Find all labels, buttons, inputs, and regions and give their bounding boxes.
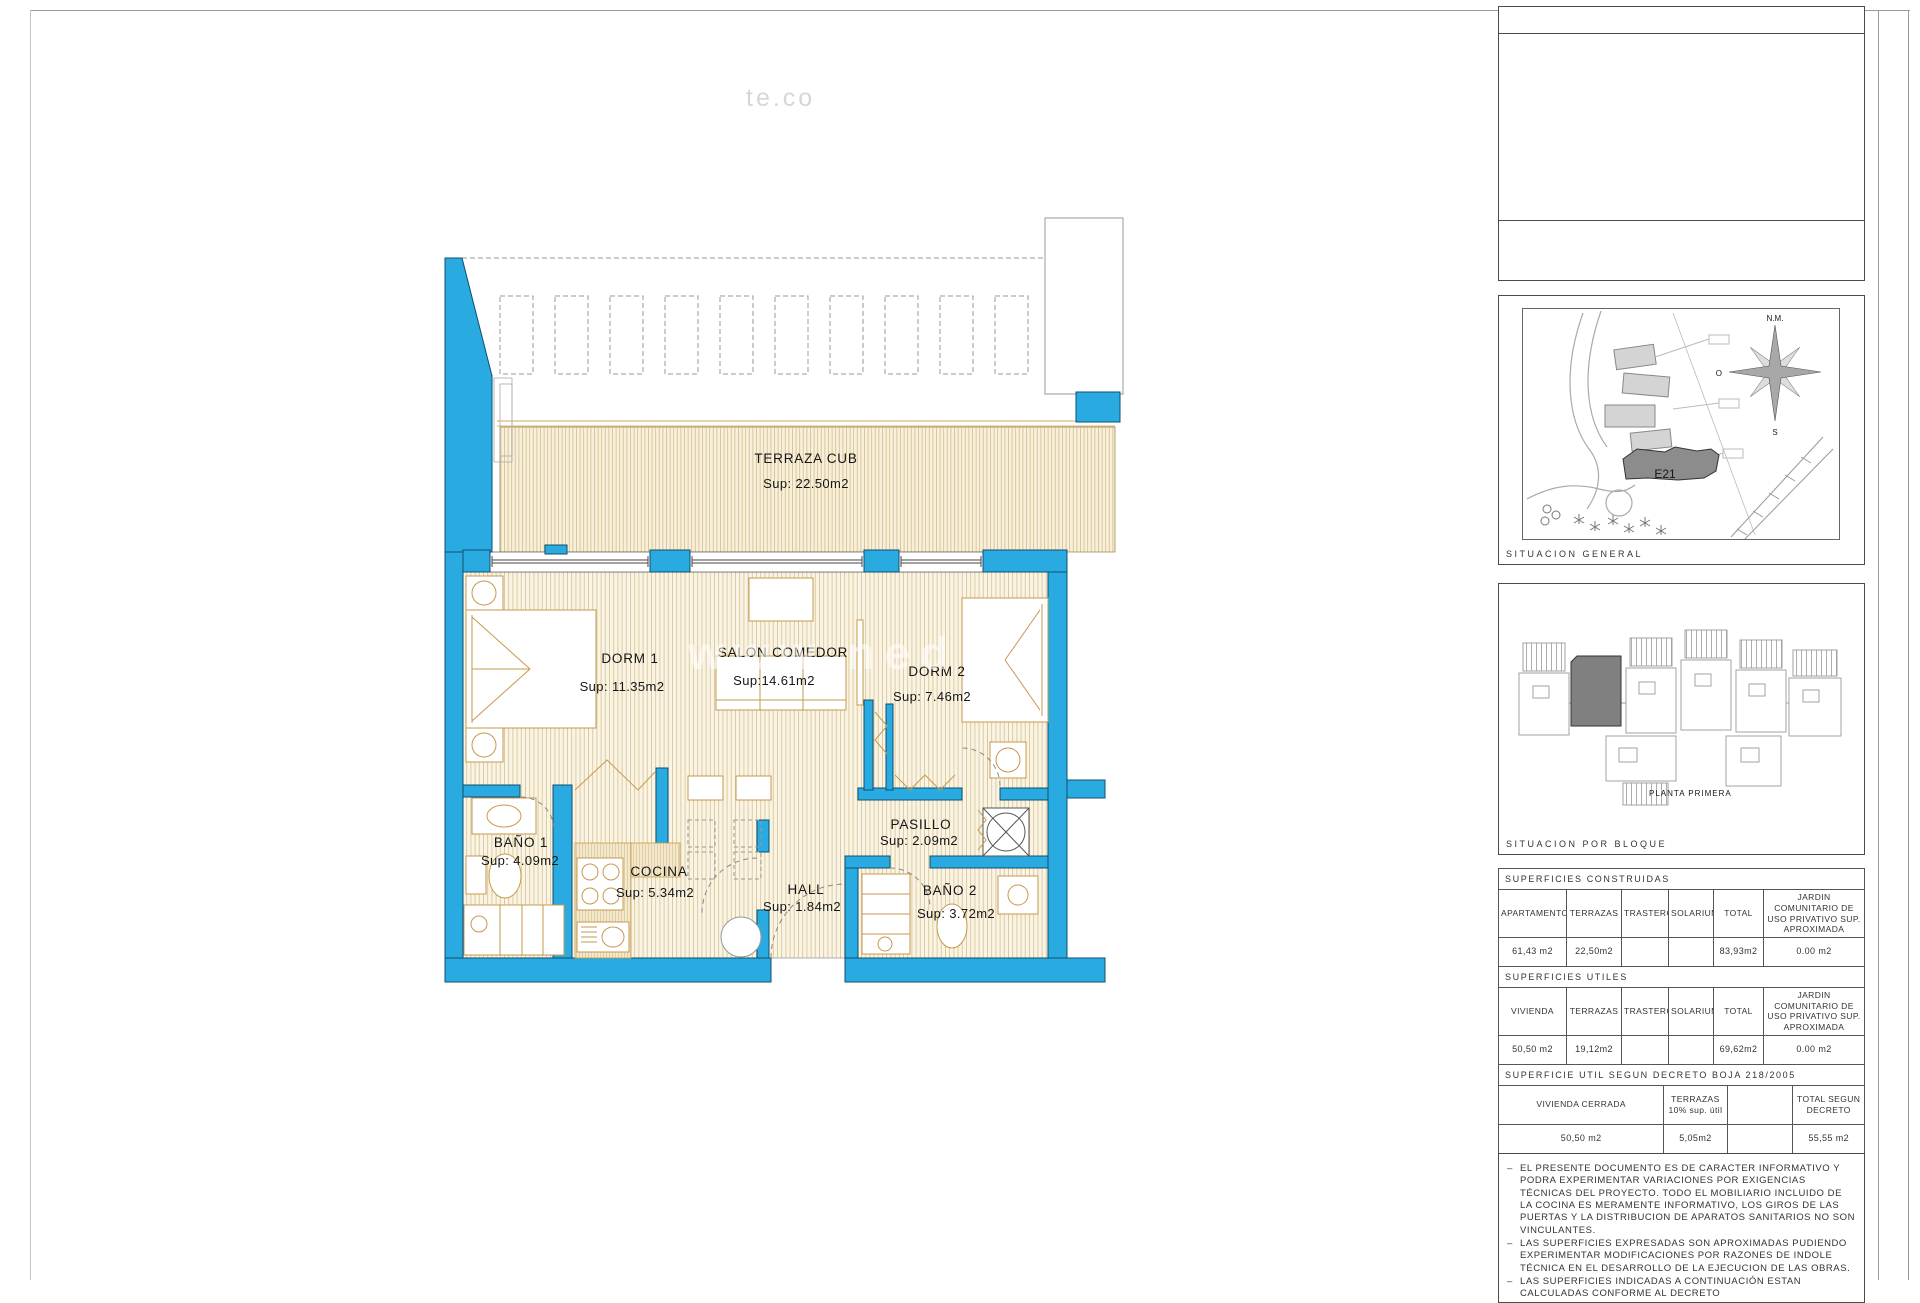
compass-south-label: S (1772, 428, 1777, 437)
col-header (1727, 1085, 1793, 1124)
bloque-plan-svg: PLANTA PRIMERA (1511, 598, 1851, 828)
situacion-general-panel: E21 N.M. O S SITUACION GENERAL (1498, 295, 1865, 565)
site-map-svg: E21 N.M. O S (1523, 309, 1839, 539)
title-block (1498, 6, 1865, 281)
room-area: Sup: 1.84m2 (763, 899, 841, 914)
notes-panel: – EL PRESENTE DOCUMENTO ES DE CARACTER I… (1498, 1153, 1865, 1303)
table-title: SUPERFICIE UTIL SEGUN DECRETO BOJA 218/2… (1499, 1064, 1865, 1085)
col-header: SOLARIUM (1669, 890, 1714, 938)
table-title: SUPERFICIES CONSTRUIDAS (1499, 869, 1865, 890)
window-band (463, 552, 1048, 572)
surface-tables: SUPERFICIES CONSTRUIDAS APARTAMENTO TERR… (1498, 868, 1865, 1179)
drawing-sheet: { "plan": { "rooms": [ {"name": "TERRAZA… (0, 0, 1920, 1280)
watermark-middle: www.ned (688, 626, 958, 680)
situacion-bloque-label: SITUACION POR BLOQUE (1506, 839, 1667, 849)
note-bullet: – (1507, 1163, 1520, 1237)
col-header: SOLARIUM (1669, 988, 1714, 1036)
room-label: DORM 1 (601, 651, 658, 666)
room-area: Sup: 4.09m2 (481, 853, 559, 868)
room-area: Sup: 2.09m2 (880, 833, 958, 848)
room-label: BAÑO 1 (494, 835, 548, 850)
roof-notch (1045, 218, 1123, 394)
col-header: TERRAZAS (1567, 988, 1622, 1036)
note-text: EL PRESENTE DOCUMENTO ES DE CARACTER INF… (1520, 1163, 1856, 1237)
compass-west-label: O (1716, 369, 1722, 378)
col-header: JARDIN COMUNITARIO DE USO PRIVATIVO SUP.… (1764, 988, 1865, 1036)
col-header: VIVIENDA (1499, 988, 1567, 1036)
room-area: Sup: 22.50m2 (763, 476, 849, 491)
room-area: Sup: 7.46m2 (893, 689, 971, 704)
cell-value: 55,55 m2 (1793, 1124, 1865, 1153)
watermark-top: te.co (746, 84, 815, 113)
cell-value: 5,05m2 (1664, 1124, 1727, 1153)
room-area: Sup: 11.35m2 (580, 679, 665, 694)
cell-value: 0.00 m2 (1764, 937, 1865, 966)
col-header: TRASTERO (1622, 988, 1669, 1036)
coffee-table (749, 578, 813, 621)
col-header: TERRAZAS (1567, 890, 1622, 938)
col-header: JARDIN COMUNITARIO DE USO PRIVATIVO SUP.… (1764, 890, 1865, 938)
frame-left (30, 10, 31, 1280)
site-trees (1541, 505, 1666, 535)
cell-value: 50,50 m2 (1499, 1124, 1664, 1153)
note-item: – LAS SUPERFICIES EXPRESADAS SON APROXIM… (1507, 1238, 1856, 1275)
note-item: – EL PRESENTE DOCUMENTO ES DE CARACTER I… (1507, 1163, 1856, 1237)
pasillo-shaft (983, 808, 1029, 856)
col-header: TOTAL (1714, 890, 1764, 938)
frame-right (1908, 10, 1909, 1280)
note-bullet: – (1507, 1238, 1520, 1275)
table-title: SUPERFICIES UTILES (1499, 966, 1865, 987)
col-header: TRASTERO (1622, 890, 1669, 938)
room-area: Sup: 3.72m2 (917, 906, 995, 921)
cell-value (1622, 937, 1669, 966)
situacion-general-label: SITUACION GENERAL (1506, 549, 1643, 559)
room-label: TERRAZA CUB (754, 451, 857, 466)
col-header: TOTAL (1714, 988, 1764, 1036)
title-block-divider-top (1499, 33, 1864, 34)
building-e21-label: E21 (1654, 467, 1676, 481)
floor-plan-svg: TERRAZA CUB Sup: 22.50m2 DORM 1 Sup: 11.… (440, 215, 1125, 1000)
room-label: BAÑO 2 (923, 883, 977, 898)
col-header: TERRAZAS 10% sup. útil (1664, 1085, 1727, 1124)
cell-value (1669, 937, 1714, 966)
table-superficies-construidas: SUPERFICIES CONSTRUIDAS APARTAMENTO TERR… (1498, 868, 1865, 967)
room-label: HALL (788, 882, 825, 897)
site-buildings (1605, 344, 1672, 451)
col-header: TOTAL SEGUN DECRETO (1793, 1085, 1865, 1124)
cell-value: 19,12m2 (1567, 1035, 1622, 1064)
pergola-structure (462, 258, 1045, 374)
room-label: COCINA (630, 864, 687, 879)
compass-north-label: N.M. (1767, 314, 1784, 323)
cell-value: 61,43 m2 (1499, 937, 1567, 966)
table-superficies-utiles: SUPERFICIES UTILES VIVIENDA TERRAZAS TRA… (1498, 966, 1865, 1065)
cell-value: 0.00 m2 (1764, 1035, 1865, 1064)
cell-value (1622, 1035, 1669, 1064)
compass-icon (1726, 323, 1825, 422)
room-area: Sup: 5.34m2 (616, 885, 694, 900)
title-block-divider-bottom (1499, 220, 1864, 221)
frame-inner-right (1878, 10, 1879, 1280)
cell-value: 83,93m2 (1714, 937, 1764, 966)
col-header: APARTAMENTO (1499, 890, 1567, 938)
cell-value: 22,50m2 (1567, 937, 1622, 966)
bloque-caption: PLANTA PRIMERA (1649, 789, 1732, 798)
col-header: VIVIENDA CERRADA (1499, 1085, 1664, 1124)
site-map: E21 N.M. O S (1522, 308, 1840, 540)
note-text: LAS SUPERFICIES EXPRESADAS SON APROXIMAD… (1520, 1238, 1856, 1275)
cell-value (1669, 1035, 1714, 1064)
cell-value: 50,50 m2 (1499, 1035, 1567, 1064)
cell-value: 69,62m2 (1714, 1035, 1764, 1064)
cell-value (1727, 1124, 1793, 1153)
situacion-bloque-panel: PLANTA PRIMERA SITUACION POR BLOQUE (1498, 583, 1865, 855)
room-label: PASILLO (891, 817, 952, 832)
bloque-highlighted-unit (1571, 656, 1621, 726)
